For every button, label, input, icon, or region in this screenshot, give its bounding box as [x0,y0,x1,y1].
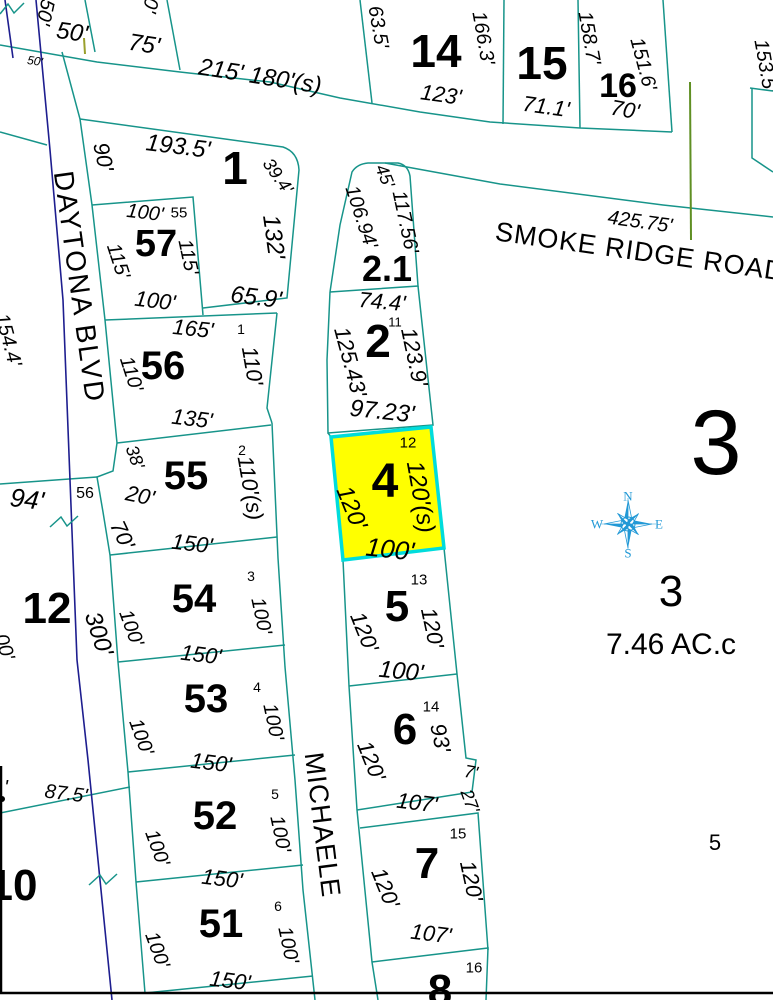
parcel-line [267,313,277,423]
parcel-line [330,163,418,292]
parcel-line [136,865,303,882]
parcel-line [360,0,372,103]
tick-line [84,38,85,54]
parcel-line [0,477,97,484]
road-edge-line [385,163,773,217]
parcel-line [145,976,313,993]
survey-line [690,82,691,240]
parcel-line [167,0,180,70]
parcel-line [663,0,672,132]
parcel-geometry-layer [0,0,773,1000]
parcel-line [752,88,773,172]
parcel-line [349,674,457,686]
break-symbol-icon [0,3,24,14]
parcel-line [503,0,504,124]
parcel-line [357,792,472,810]
parcel-line [118,645,285,662]
parcel-line [62,52,145,993]
parcel-line [272,423,315,1000]
plat-map-viewport[interactable]: 50'0'50'50'75'215' 180'(s)1463.5'166.3'1… [0,0,773,1000]
break-symbol-icon [50,516,78,527]
break-symbol-icon [89,874,117,885]
parcel-line [0,787,130,813]
parcel-line [80,119,299,308]
compass-rose-icon [600,498,656,550]
highlighted-parcel-lot-4[interactable] [331,427,444,560]
parcel-line [750,88,773,91]
parcel-line [0,45,672,132]
parcel-line [128,755,295,772]
parcel-line [117,425,271,443]
parcel-line [578,0,580,128]
parcel-line [360,813,488,950]
survey-point [0,796,5,802]
parcel-line [110,537,277,555]
parcel-line [327,286,433,433]
parcel-line [444,548,476,792]
parcel-line [92,197,203,315]
parcel-line [85,0,95,52]
parcel-line [0,132,47,145]
parcel-line [105,313,277,320]
